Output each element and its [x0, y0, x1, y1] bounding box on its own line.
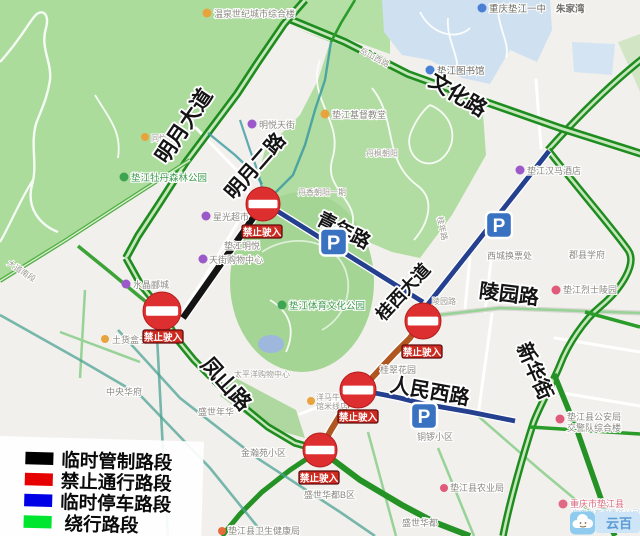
svg-text:禁止驶入: 禁止驶入 — [243, 226, 282, 238]
svg-text:重庆垫江一中: 重庆垫江一中 — [489, 3, 546, 15]
svg-text:P: P — [493, 216, 506, 237]
svg-text:朱家湾: 朱家湾 — [555, 3, 585, 15]
svg-text:P: P — [418, 407, 431, 428]
svg-text:垫江明悦: 垫江明悦 — [224, 240, 260, 251]
svg-text:禁止驶入: 禁止驶入 — [403, 346, 442, 358]
svg-text:金瀚苑小区: 金瀚苑小区 — [241, 447, 286, 458]
svg-text:垫江烈士陵园: 垫江烈士陵园 — [563, 284, 617, 295]
svg-text:禁止驶入: 禁止驶入 — [300, 472, 339, 484]
svg-text:铜锣小区: 铜锣小区 — [417, 431, 453, 442]
svg-text:垫江县卫生健康局: 垫江县卫生健康局 — [228, 525, 300, 536]
svg-text:云百: 云百 — [606, 516, 632, 531]
svg-text:盛世华都: 盛世华都 — [402, 517, 438, 528]
svg-text:垫江县农业局: 垫江县农业局 — [450, 482, 504, 493]
svg-text:丹香朝阳一期: 丹香朝阳一期 — [298, 187, 346, 197]
svg-text:郡县学府: 郡县学府 — [569, 249, 605, 260]
svg-text:水晶郦城: 水晶郦城 — [133, 279, 169, 290]
svg-text:盛世年华: 盛世年华 — [198, 406, 234, 417]
svg-text:垫江县公安局: 垫江县公安局 — [567, 411, 621, 422]
svg-text:星光超市: 星光超市 — [213, 211, 249, 222]
svg-text:桂翠花园: 桂翠花园 — [380, 364, 416, 375]
svg-text:禁止驶入: 禁止驶入 — [339, 411, 378, 423]
svg-text:垫江汉马酒店: 垫江汉马酒店 — [527, 165, 581, 176]
svg-text:禁止驶入: 禁止驶入 — [144, 331, 183, 343]
svg-text:盛世华都B区: 盛世华都B区 — [304, 489, 355, 500]
svg-text:温泉世纪城市综合楼: 温泉世纪城市综合楼 — [214, 8, 295, 19]
svg-text:丹枫朝阳: 丹枫朝阳 — [366, 148, 398, 158]
svg-text:西城换票处: 西城换票处 — [487, 250, 532, 261]
svg-text:交警队综合楼: 交警队综合楼 — [567, 422, 621, 433]
svg-text:中央华府: 中央华府 — [106, 386, 142, 397]
svg-text:明悦天街: 明悦天街 — [259, 119, 295, 130]
svg-text:P: P — [327, 233, 340, 255]
svg-text:临时停车路段: 临时停车路段 — [60, 491, 172, 515]
svg-text:垫江牡丹森林公园: 垫江牡丹森林公园 — [131, 172, 207, 184]
svg-text:天街购物中心: 天街购物中心 — [209, 254, 263, 265]
svg-text:重庆市垫江县: 重庆市垫江县 — [570, 498, 624, 509]
svg-text:垫江基督教堂: 垫江基督教堂 — [332, 109, 386, 120]
svg-text:垫江体育文化公园: 垫江体育文化公园 — [289, 300, 365, 312]
svg-text:绕行路段: 绕行路段 — [64, 513, 139, 536]
svg-text:陵园路: 陵园路 — [432, 296, 456, 306]
svg-text:太平洋购物中心: 太平洋购物中心 — [234, 369, 290, 379]
